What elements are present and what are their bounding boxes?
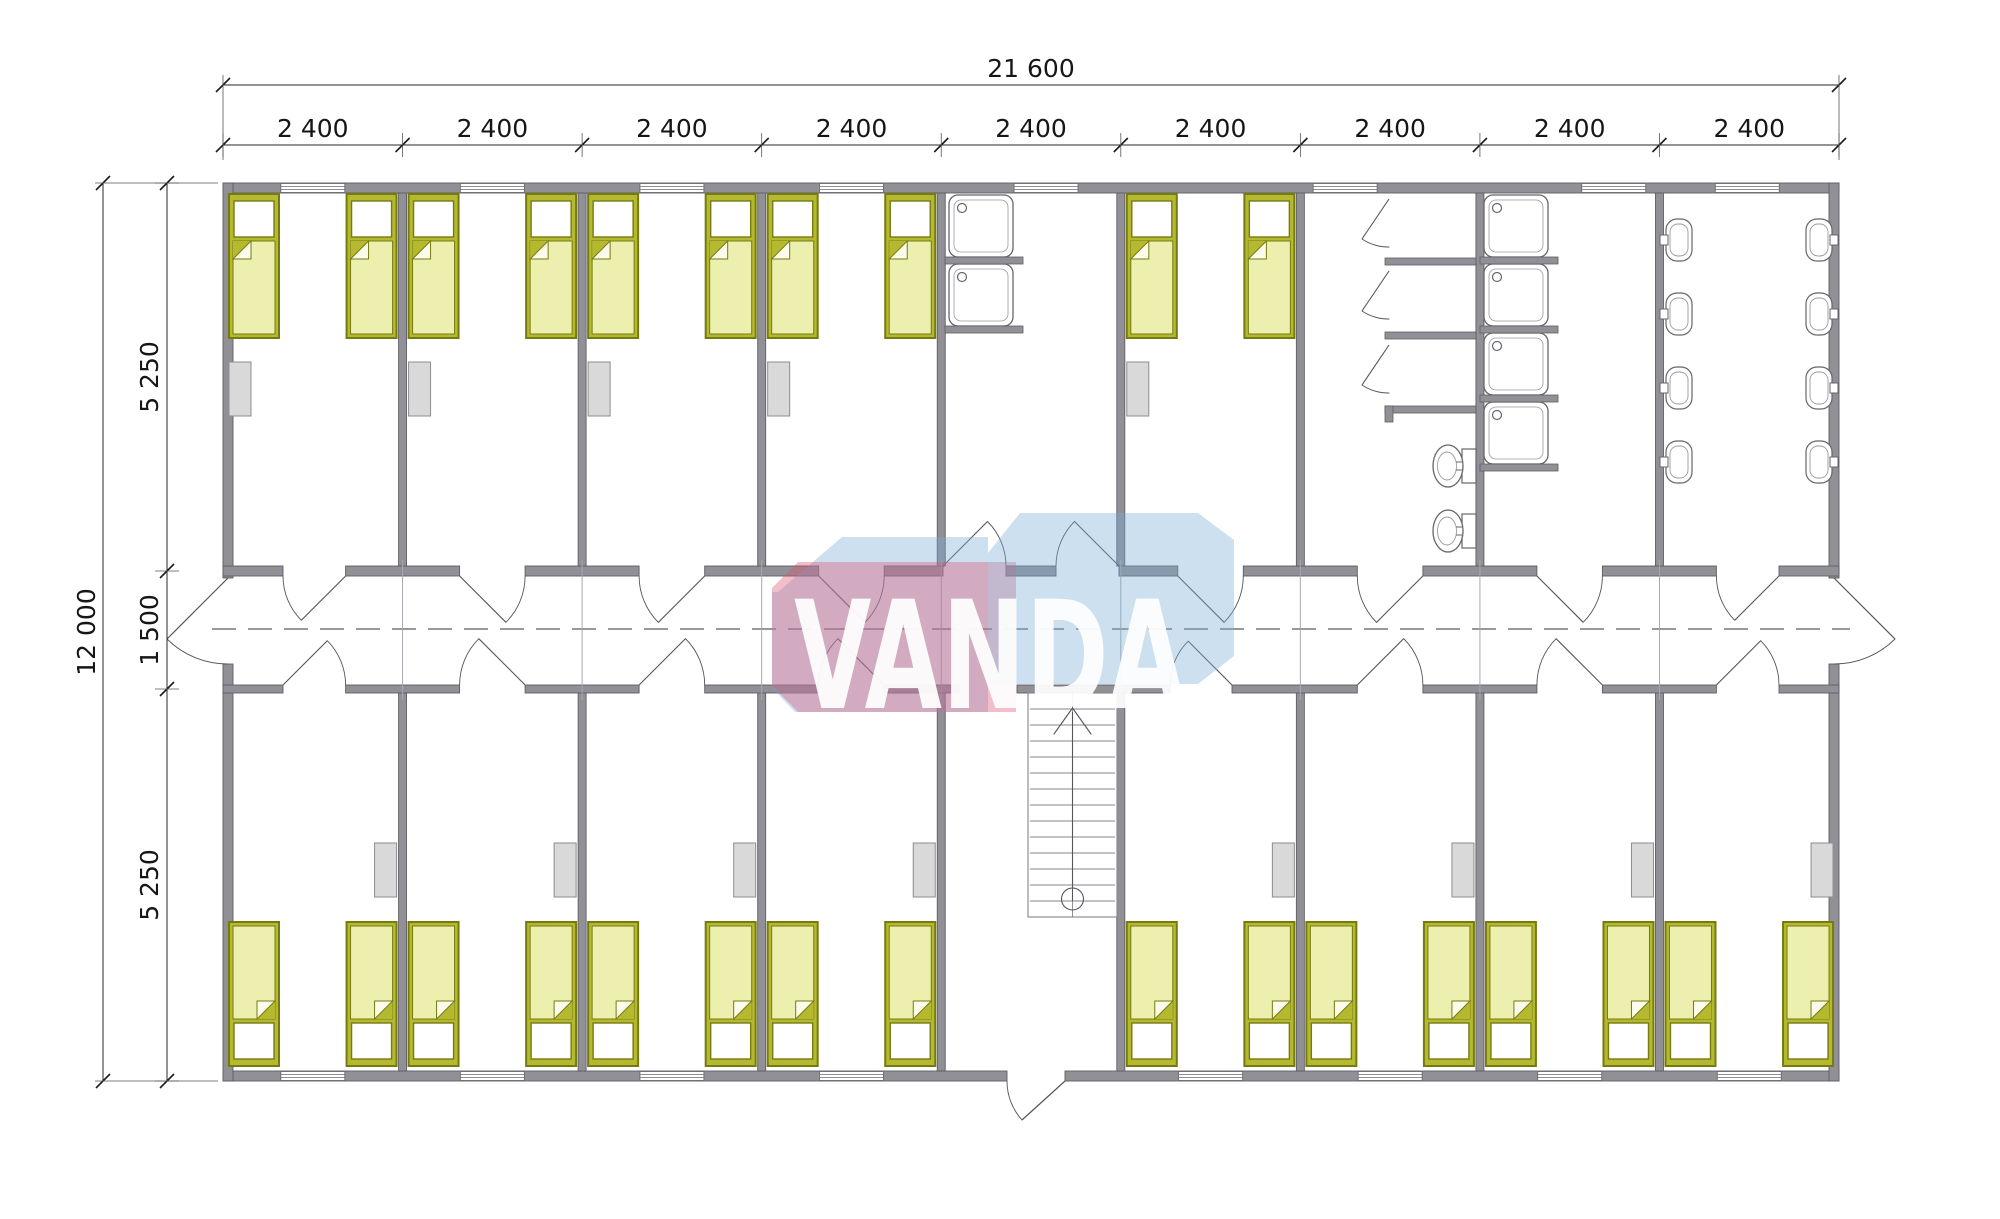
door-leaf	[1537, 576, 1583, 622]
tray-partition	[945, 257, 1023, 264]
bed-pillow	[352, 201, 392, 237]
washbasin-tap	[1830, 457, 1838, 467]
partition-wall-top	[1476, 193, 1484, 566]
toilet-cistern	[1462, 449, 1476, 483]
dimension-label: 5 250	[135, 849, 164, 921]
dimension-label: 5 250	[135, 341, 164, 413]
window	[281, 1072, 345, 1081]
bed-pillow	[1249, 201, 1289, 237]
bed-pillow	[593, 201, 633, 237]
washbasin-tap	[1660, 309, 1668, 319]
wc-stall-partition	[1385, 406, 1476, 413]
partition-wall-top	[578, 193, 586, 566]
floor-plan-drawing: 21 6002 4002 4002 4002 4002 4002 4002 40…	[0, 0, 2000, 1219]
corridor-wall-north	[1779, 566, 1839, 576]
corridor-wall-south	[1779, 685, 1839, 693]
bed-pillow	[773, 1023, 813, 1059]
window	[819, 184, 883, 193]
dimension-label: 2 400	[816, 114, 888, 143]
wardrobe	[768, 362, 790, 416]
bed-pillow	[773, 201, 813, 237]
door-swing-arc	[506, 576, 525, 622]
partition-wall-bottom	[399, 693, 407, 1071]
window	[1358, 1072, 1422, 1081]
corridor-wall-south	[1232, 685, 1357, 693]
window	[460, 184, 524, 193]
dimension-label: 21 600	[987, 54, 1074, 83]
bed-pillow	[1670, 1023, 1710, 1059]
door-swing-arc	[639, 576, 658, 622]
bed-pillow	[531, 1023, 571, 1059]
door-swing-arc	[1357, 576, 1376, 622]
partition-wall-bottom	[1476, 693, 1484, 1071]
floor-plan-canvas: 21 6002 4002 4002 4002 4002 4002 4002 40…	[0, 0, 2000, 1219]
door-swing-arc	[1537, 639, 1556, 685]
door-swing-arc	[327, 641, 345, 685]
partition-wall-bottom	[758, 693, 766, 1071]
watermark-text: VANDA	[794, 570, 1186, 744]
bed-pillow	[1608, 1023, 1648, 1059]
bed-pillow	[234, 201, 274, 237]
wc-stall-door-leaf	[1362, 199, 1389, 239]
window	[460, 1072, 524, 1081]
wc-stall-door-arc	[1362, 311, 1389, 319]
wardrobe	[588, 362, 610, 416]
wc-stall-door-arc	[1362, 385, 1389, 393]
window	[1715, 184, 1779, 193]
bed-pillow	[352, 1023, 392, 1059]
partition-wall-top	[399, 193, 407, 566]
door-swing-arc	[460, 639, 479, 685]
wardrobe	[913, 843, 935, 897]
tray-partition	[1480, 326, 1558, 333]
washbasin-tap	[1660, 235, 1668, 245]
tray-partition	[945, 326, 1023, 333]
dimension-label: 2 400	[457, 114, 529, 143]
exterior-door-leaf-west	[167, 578, 228, 639]
tray-partition	[1480, 257, 1558, 264]
bed-pillow	[1132, 201, 1172, 237]
wc-stall-partition	[1385, 332, 1476, 339]
wardrobe	[1452, 843, 1474, 897]
door-leaf	[1716, 641, 1760, 685]
partition-wall-bottom	[578, 693, 586, 1071]
bed-pillow	[531, 201, 571, 237]
washbasin-tap	[1830, 309, 1838, 319]
door-swing-arc	[1761, 641, 1779, 685]
dimension-label: 2 400	[1713, 114, 1785, 143]
partition-wall-top	[1655, 193, 1663, 566]
bed-pillow	[414, 1023, 454, 1059]
wardrobe	[229, 362, 251, 416]
window	[281, 184, 345, 193]
wardrobe	[1811, 843, 1833, 897]
bed-pillow	[1132, 1023, 1172, 1059]
bed-pillow	[1429, 1023, 1469, 1059]
shower-tray-drain	[1493, 411, 1502, 420]
wardrobe	[375, 843, 397, 897]
bed-pillow	[1311, 1023, 1351, 1059]
tray-partition	[1480, 395, 1558, 402]
dimension-label: 2 400	[995, 114, 1067, 143]
wc-stall-partition	[1385, 258, 1476, 265]
wc-stall-return-wall	[1385, 406, 1393, 422]
door-swing-arc	[1716, 576, 1734, 620]
wardrobe	[409, 362, 431, 416]
dimension-label: 2 400	[277, 114, 349, 143]
wardrobe	[1631, 843, 1653, 897]
dimension-label: 2 400	[636, 114, 708, 143]
bed-pillow	[1249, 1023, 1289, 1059]
door-leaf	[1556, 639, 1602, 685]
partition-wall-top	[758, 193, 766, 566]
wc-stall-door-leaf	[1362, 271, 1389, 311]
partition-wall-bottom	[1117, 693, 1125, 1071]
bed-pillow	[1788, 1023, 1828, 1059]
toilet-cistern	[1462, 514, 1476, 548]
door-swing-arc	[1404, 639, 1423, 685]
window	[1717, 1072, 1781, 1081]
exterior-door-leaf-east	[1834, 578, 1895, 639]
corridor-wall-south	[223, 685, 283, 693]
bed-pillow	[234, 1023, 274, 1059]
door-swing-arc	[1583, 576, 1602, 622]
dimension-label: 1 500	[135, 594, 164, 666]
shower-tray-drain	[1493, 273, 1502, 282]
partition-wall-bottom	[1296, 693, 1304, 1071]
door-swing-arc	[283, 576, 301, 620]
door-leaf	[1377, 576, 1423, 622]
door-leaf	[283, 641, 327, 685]
shower-tray-drain	[958, 273, 967, 282]
partition-wall-top	[1296, 193, 1304, 566]
wc-stall-door-arc	[1362, 239, 1389, 247]
window	[1582, 184, 1646, 193]
door-leaf	[479, 639, 525, 685]
shower-tray-drain	[958, 204, 967, 213]
exterior-door-arc-east	[1834, 639, 1895, 664]
washbasin-tap	[1830, 235, 1838, 245]
door-leaf	[301, 576, 345, 620]
shower-tray-drain	[1493, 342, 1502, 351]
wardrobe	[734, 843, 756, 897]
bed-pillow	[890, 201, 930, 237]
bed-pillow	[1491, 1023, 1531, 1059]
door-leaf	[1357, 639, 1403, 685]
washbasin-tap	[1660, 457, 1668, 467]
window	[1179, 1072, 1243, 1081]
wardrobe	[554, 843, 576, 897]
window	[640, 1072, 704, 1081]
window	[1014, 184, 1078, 193]
washbasin-tap	[1830, 383, 1838, 393]
bed-pillow	[414, 201, 454, 237]
exterior-door-arc-west	[167, 639, 228, 664]
dimension-label: 2 400	[1354, 114, 1426, 143]
partition-wall-top	[937, 193, 945, 566]
corridor-wall-north	[223, 566, 283, 576]
window	[1313, 184, 1377, 193]
window	[640, 184, 704, 193]
door-leaf	[658, 576, 704, 622]
wc-stall-door-leaf	[1362, 345, 1389, 385]
wardrobe	[1127, 362, 1149, 416]
door-leaf	[460, 576, 506, 622]
door-leaf	[639, 639, 685, 685]
bed-pillow	[711, 1023, 751, 1059]
wardrobe	[1272, 843, 1294, 897]
dimension-label: 2 400	[1534, 114, 1606, 143]
washbasin-tap	[1660, 383, 1668, 393]
shower-tray-drain	[1493, 204, 1502, 213]
dimension-label: 12 000	[72, 588, 101, 675]
bed-pillow	[711, 201, 751, 237]
partition-wall-bottom	[1655, 693, 1663, 1071]
door-leaf	[1735, 576, 1779, 620]
dimension-label: 2 400	[1175, 114, 1247, 143]
exterior-door-leaf-south	[1022, 1081, 1065, 1120]
bed-pillow	[890, 1023, 930, 1059]
partition-wall-top	[1117, 193, 1125, 566]
exterior-door-arc-south	[1007, 1081, 1022, 1120]
tray-partition	[1480, 464, 1558, 471]
door-swing-arc	[685, 639, 704, 685]
window	[819, 1072, 883, 1081]
partition-wall-bottom	[937, 693, 945, 1071]
bed-pillow	[593, 1023, 633, 1059]
window	[1538, 1072, 1602, 1081]
